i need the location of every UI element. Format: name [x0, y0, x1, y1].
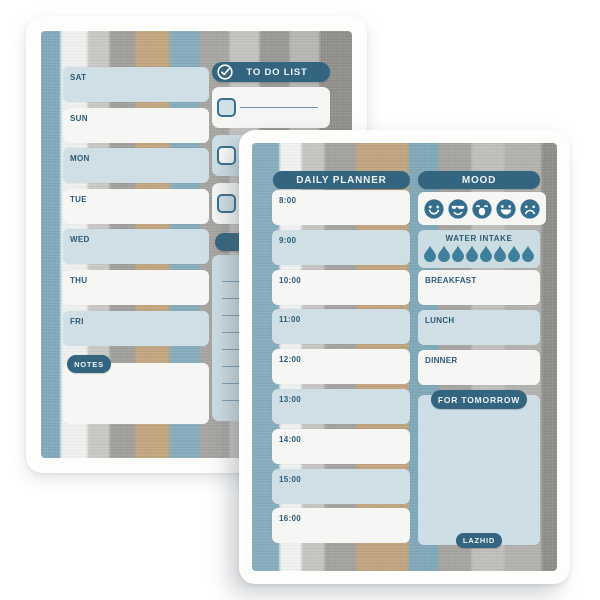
time-slot-row: 8:00 — [272, 190, 410, 225]
time-slot-row: 11:00 — [272, 309, 410, 344]
time-label: 13:00 — [272, 389, 410, 404]
todo-write-line — [240, 107, 318, 108]
time-slot-row: 16:00 — [272, 508, 410, 543]
time-label: 14:00 — [272, 429, 410, 444]
day-row-sat: SAT — [63, 67, 209, 102]
water-drop-icon — [522, 245, 534, 262]
todo-row — [212, 87, 330, 128]
notes-label: NOTES — [74, 360, 104, 369]
mood-title: MOOD — [462, 175, 496, 186]
day-row-fri: FRI — [63, 311, 209, 346]
day-label: SUN — [63, 108, 209, 123]
mood-header: MOOD — [418, 171, 540, 189]
breakfast-box: BREAKFAST — [418, 270, 540, 305]
weekly-day-rows: SATSUNMONTUEWEDTHUFRI — [63, 67, 209, 346]
sad-face-icon — [519, 198, 541, 220]
for-tomorrow-header: FOR TOMORROW — [431, 390, 527, 409]
lunch-box: LUNCH — [418, 310, 540, 345]
day-row-thu: THU — [63, 270, 209, 305]
daily-planner-page: DAILY PLANNER MOOD 8:009:0010:0011:0012:… — [239, 130, 570, 584]
water-drop-icon — [452, 245, 464, 262]
daily-planner-title: DAILY PLANNER — [296, 175, 386, 186]
todo-list-title: TO DO LIST — [246, 67, 307, 78]
day-row-sun: SUN — [63, 108, 209, 143]
water-drop-icon — [508, 245, 520, 262]
brand-badge: LAZHID — [456, 533, 502, 548]
day-label: THU — [63, 270, 209, 285]
water-drop-icon — [480, 245, 492, 262]
brand-label: LAZHID — [463, 536, 495, 545]
todo-list-header: TO DO LIST — [212, 62, 330, 82]
time-label: 11:00 — [272, 309, 410, 324]
water-drop-row — [418, 245, 540, 262]
dinner-box: DINNER — [418, 350, 540, 385]
time-label: 9:00 — [272, 230, 410, 245]
day-row-wed: WED — [63, 229, 209, 264]
todo-checkbox — [217, 194, 236, 213]
time-slot-row: 15:00 — [272, 469, 410, 504]
water-intake-box: WATER INTAKE — [418, 230, 540, 268]
time-label: 16:00 — [272, 508, 410, 523]
grinning-face-icon — [495, 198, 517, 220]
for-tomorrow-title: FOR TOMORROW — [438, 395, 520, 405]
water-drop-icon — [466, 245, 478, 262]
dinner-label: DINNER — [418, 350, 540, 365]
time-label: 12:00 — [272, 349, 410, 364]
time-label: 15:00 — [272, 469, 410, 484]
time-label: 8:00 — [272, 190, 410, 205]
breakfast-label: BREAKFAST — [418, 270, 540, 285]
day-row-mon: MON — [63, 148, 209, 183]
planner-mockup: SATSUNMONTUEWEDTHUFRI NOTES TO DO LIST S… — [0, 0, 600, 600]
yawning-face-icon — [471, 198, 493, 220]
water-intake-title: WATER INTAKE — [418, 234, 540, 243]
daily-planner-header: DAILY PLANNER — [273, 171, 410, 189]
water-drop-icon — [494, 245, 506, 262]
for-tomorrow-box — [418, 395, 540, 545]
day-row-tue: TUE — [63, 189, 209, 224]
time-slot-row: 13:00 — [272, 389, 410, 424]
water-drop-icon — [438, 245, 450, 262]
water-drop-icon — [424, 245, 436, 262]
day-label: MON — [63, 148, 209, 163]
mood-tracker-box — [418, 192, 546, 225]
check-circle-icon — [216, 63, 234, 81]
day-label: SAT — [63, 67, 209, 82]
time-label: 10:00 — [272, 270, 410, 285]
notes-header: NOTES — [67, 355, 111, 373]
todo-checkbox — [217, 98, 236, 117]
time-slot-row: 12:00 — [272, 349, 410, 384]
happy-face-icon — [423, 198, 445, 220]
time-slot-row: 14:00 — [272, 429, 410, 464]
lunch-label: LUNCH — [418, 310, 540, 325]
time-slot-row: 9:00 — [272, 230, 410, 265]
time-slot-rows: 8:009:0010:0011:0012:0013:0014:0015:0016… — [272, 190, 410, 543]
day-label: FRI — [63, 311, 209, 326]
day-label: WED — [63, 229, 209, 244]
day-label: TUE — [63, 189, 209, 204]
cool-face-icon — [447, 198, 469, 220]
time-slot-row: 10:00 — [272, 270, 410, 305]
todo-checkbox — [217, 146, 236, 165]
